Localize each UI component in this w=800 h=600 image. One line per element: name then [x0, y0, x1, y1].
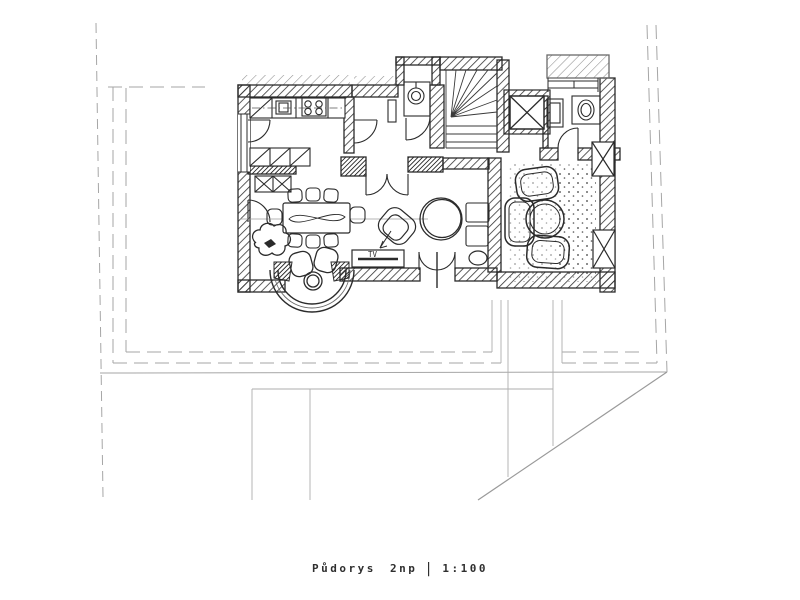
wall-top-left — [238, 85, 352, 97]
kitchen-door — [248, 120, 270, 142]
x-column-bottom — [593, 230, 615, 268]
property-line — [96, 23, 103, 497]
staircase — [446, 70, 497, 148]
wall-mid-block-a — [341, 157, 366, 176]
boiler — [408, 88, 424, 104]
kitchen — [250, 98, 396, 192]
wardrobe-cabinets-row2 — [255, 176, 291, 192]
pouf — [469, 251, 487, 265]
shaft-with-x — [504, 90, 550, 134]
pencil-overdraw-top — [242, 75, 350, 85]
wall-bottom-left — [238, 280, 285, 292]
boiler-closet — [404, 82, 430, 116]
toilet — [572, 96, 600, 124]
site-edge-line — [100, 372, 667, 373]
caption-title: Půdorys 2np — [312, 562, 417, 575]
caption-scale: 1:100 — [442, 562, 488, 575]
bathroom-door — [558, 128, 578, 148]
hall-door — [354, 120, 377, 143]
wall-mid-segment — [443, 158, 489, 169]
living-area: TV — [352, 198, 489, 267]
wall-bottom-mid — [340, 268, 420, 281]
site-right-line — [656, 25, 667, 372]
wall-bath-bottom-a — [540, 148, 558, 160]
left-window — [238, 114, 250, 172]
radiator — [388, 100, 396, 122]
x-column-top — [592, 142, 614, 176]
stair-treads — [446, 126, 497, 142]
lower-floor-lines — [252, 300, 562, 500]
wall-kitchen-strip — [248, 166, 296, 174]
wall-boiler-right — [432, 57, 440, 85]
mid-double-door — [366, 174, 408, 195]
wardrobe-cabinets-row1 — [250, 148, 310, 166]
terrace-right-line — [647, 25, 657, 363]
wall-stair-left — [430, 85, 444, 148]
bathroom-window — [548, 78, 598, 92]
lot-diagonal-line — [478, 372, 667, 500]
bay-table — [304, 272, 322, 290]
caption: Půdorys 2np|1:100 — [0, 561, 800, 577]
wall-living-divider — [488, 158, 501, 272]
wall-bottom-door-right — [455, 268, 497, 281]
boiler-door — [406, 118, 430, 140]
shelf-unit — [466, 203, 489, 246]
plant — [253, 223, 291, 255]
bay-wedge-right — [331, 262, 349, 281]
lounge — [505, 142, 615, 282]
floor-plan-sheet: TV — [0, 0, 800, 600]
wall-bath-parapet — [547, 55, 609, 78]
bathroom — [547, 96, 600, 127]
tv-stand: TV — [352, 250, 404, 267]
french-door — [419, 252, 455, 288]
wall-stair-top — [440, 57, 502, 70]
tv-label: TV — [368, 250, 378, 259]
armchair — [374, 204, 419, 249]
wall-top-mid — [352, 85, 398, 97]
pencil-overdraw-topmid — [354, 76, 398, 85]
dining-area — [240, 188, 428, 255]
wall-mid-block-b — [408, 157, 443, 172]
caption-separator: | — [417, 561, 442, 577]
stair-winders — [451, 70, 497, 117]
floor-plan-svg: TV — [0, 0, 800, 600]
